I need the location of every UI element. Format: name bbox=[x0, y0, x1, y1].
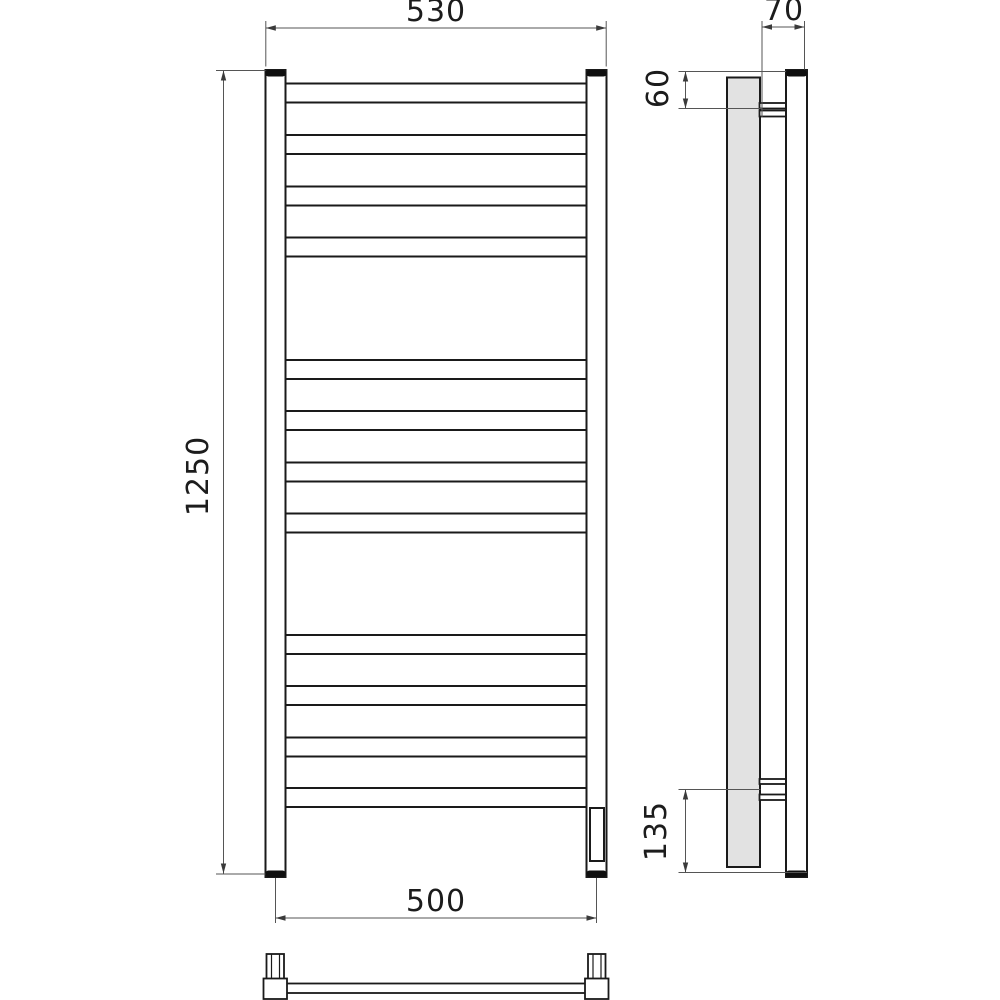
bottom-bracket bbox=[760, 779, 787, 800]
bottom-view-right-foot bbox=[585, 979, 609, 1000]
bottom-view-bar bbox=[287, 984, 586, 994]
rung bbox=[284, 360, 588, 379]
post-cap bbox=[786, 70, 807, 77]
dimension-label-60: 60 bbox=[641, 68, 676, 108]
heating-element-housing bbox=[590, 808, 604, 861]
rung bbox=[284, 635, 588, 654]
bracket-plate bbox=[760, 795, 787, 801]
rung bbox=[284, 411, 588, 430]
post-cap bbox=[587, 871, 607, 878]
dimension-label-500: 500 bbox=[406, 884, 466, 919]
rung bbox=[284, 187, 588, 206]
rung bbox=[284, 463, 588, 482]
bottom-view-left-tube bbox=[267, 954, 285, 979]
bottom-view-left-foot bbox=[264, 979, 288, 1000]
arrowhead bbox=[221, 71, 226, 81]
right-post bbox=[587, 70, 607, 877]
dimension-label-530: 530 bbox=[406, 0, 466, 29]
bracket-plate bbox=[760, 779, 787, 784]
left-post bbox=[266, 70, 286, 877]
bracket-plate bbox=[760, 111, 787, 117]
rungs bbox=[284, 84, 588, 808]
arrowhead bbox=[587, 915, 597, 920]
dimension-label-135: 135 bbox=[639, 801, 674, 861]
arrowhead bbox=[683, 72, 688, 82]
arrowhead bbox=[683, 863, 688, 873]
towel-rail-technical-drawing: 530 1250 500 70 60 bbox=[0, 0, 1000, 1000]
post-cap bbox=[266, 70, 286, 77]
front-view bbox=[266, 70, 607, 877]
arrowhead bbox=[221, 864, 226, 874]
arrowhead bbox=[266, 25, 276, 30]
rung bbox=[284, 514, 588, 533]
dimension-label-1250: 1250 bbox=[181, 436, 216, 516]
side-post bbox=[786, 70, 807, 877]
arrowhead bbox=[683, 790, 688, 800]
rung bbox=[284, 738, 588, 757]
side-view bbox=[727, 70, 807, 877]
dimension-side-bottom-offset: 135 bbox=[639, 790, 807, 873]
post-cap bbox=[266, 871, 286, 878]
rung bbox=[284, 238, 588, 257]
bottom-view bbox=[264, 954, 609, 999]
dimension-front-width-top: 530 bbox=[266, 0, 606, 67]
rung bbox=[284, 686, 588, 705]
post-cap bbox=[786, 871, 807, 878]
dimension-label-70: 70 bbox=[764, 0, 804, 28]
arrowhead bbox=[683, 99, 688, 109]
rung bbox=[284, 788, 588, 807]
arrowhead bbox=[276, 915, 286, 920]
rung bbox=[284, 135, 588, 154]
drawing-svg: 530 1250 500 70 60 bbox=[0, 0, 1000, 1000]
rung bbox=[284, 84, 588, 103]
bracket-plate bbox=[760, 103, 787, 109]
post-cap bbox=[587, 70, 607, 77]
arrowhead bbox=[596, 25, 606, 30]
side-panel bbox=[727, 78, 760, 868]
top-bracket bbox=[760, 103, 787, 117]
dimension-front-height: 1250 bbox=[181, 71, 266, 875]
bottom-view-right-tube bbox=[588, 954, 606, 979]
dimension-front-width-bottom: 500 bbox=[276, 878, 597, 923]
